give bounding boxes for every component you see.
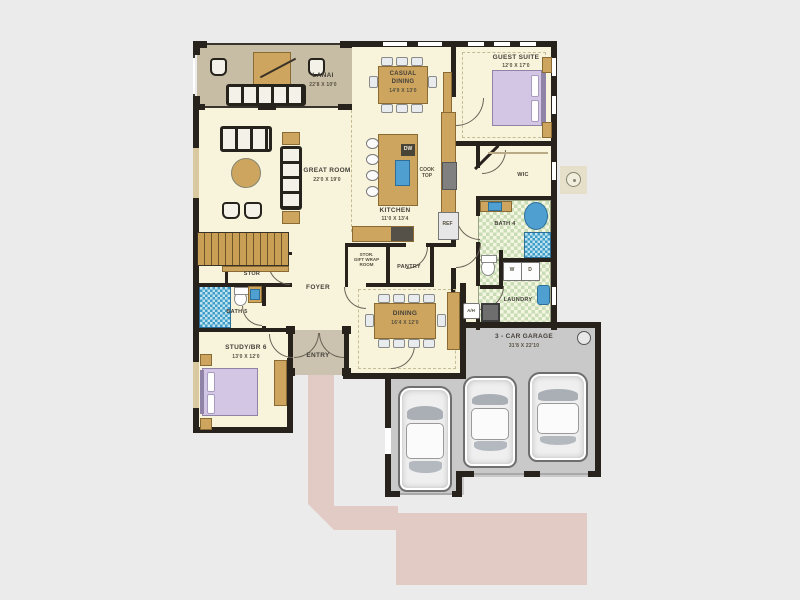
dining-label: DINING bbox=[381, 310, 429, 318]
window bbox=[193, 58, 195, 94]
study-bed bbox=[202, 368, 258, 416]
wall bbox=[460, 283, 466, 379]
end-table bbox=[282, 132, 300, 145]
sectional-sofa bbox=[280, 146, 302, 210]
wic-label: WIC bbox=[505, 172, 541, 179]
lanai-coffee-table bbox=[253, 52, 291, 85]
bath5-sink bbox=[250, 289, 260, 300]
garage-label: 3 - CAR GARAGE bbox=[468, 333, 580, 341]
dining-chair bbox=[378, 294, 390, 303]
nightstand bbox=[200, 354, 212, 366]
great-room-label: GREAT ROOM bbox=[300, 167, 354, 175]
wall bbox=[262, 283, 266, 306]
window bbox=[193, 148, 199, 198]
closet-shelf bbox=[488, 152, 548, 154]
stool bbox=[366, 186, 379, 197]
window bbox=[494, 42, 510, 46]
dining-chair bbox=[428, 76, 437, 88]
dining-chair bbox=[396, 57, 408, 66]
garage-door-sill bbox=[474, 473, 524, 475]
window bbox=[193, 362, 199, 408]
wall bbox=[456, 141, 551, 146]
car bbox=[398, 386, 452, 492]
garage-window bbox=[385, 428, 391, 454]
armchair bbox=[222, 202, 240, 219]
kitchen-label: KITCHEN bbox=[368, 207, 422, 215]
bath5-shower bbox=[199, 286, 231, 328]
wall bbox=[588, 471, 601, 477]
stool bbox=[366, 170, 379, 181]
cooktop-label: COOK TOP bbox=[416, 168, 438, 180]
bath4-tub bbox=[524, 202, 548, 230]
window bbox=[468, 42, 484, 46]
wall bbox=[456, 322, 600, 328]
study-dims: 13'0 X 12'0 bbox=[216, 354, 276, 360]
wall bbox=[193, 41, 200, 55]
toilet-tank bbox=[234, 287, 249, 295]
stor-label: STOR bbox=[236, 271, 268, 278]
lanai-chair bbox=[210, 58, 227, 76]
dining-chair bbox=[381, 57, 393, 66]
ac-fan-dot bbox=[573, 179, 576, 182]
window bbox=[552, 58, 556, 76]
washer: W bbox=[503, 262, 522, 281]
wall bbox=[197, 328, 290, 332]
dining-chair bbox=[378, 339, 390, 348]
ac-unit bbox=[566, 172, 581, 187]
window bbox=[552, 96, 556, 114]
lanai-label: LANAI bbox=[303, 72, 343, 80]
dining-dims: 16'4 X 12'0 bbox=[381, 320, 429, 326]
dining-chair bbox=[365, 314, 374, 327]
wall bbox=[345, 243, 348, 287]
dining-chair bbox=[423, 339, 435, 348]
great-room-sofa bbox=[220, 126, 272, 152]
wall bbox=[430, 243, 434, 287]
laundry-label: LAUNDRY bbox=[498, 297, 538, 304]
wall bbox=[456, 471, 462, 497]
nightstand bbox=[542, 122, 552, 138]
bath4-sink bbox=[488, 202, 502, 211]
garage-dims: 31'8 X 22'10 bbox=[468, 343, 580, 349]
window bbox=[552, 287, 556, 305]
buffet bbox=[447, 292, 460, 350]
dining-chair bbox=[408, 339, 420, 348]
wall bbox=[480, 196, 551, 200]
dining-chair bbox=[393, 339, 405, 348]
laundry-sink bbox=[537, 285, 550, 305]
staircase bbox=[197, 232, 289, 266]
great-room-dims: 22'0 X 19'0 bbox=[300, 177, 354, 183]
pillow bbox=[207, 372, 215, 392]
pantry-label: PANTRY bbox=[390, 264, 428, 271]
study-label: STUDY/BR 6 bbox=[216, 344, 276, 352]
stool bbox=[366, 154, 379, 165]
floor-plan: { "plan": { "title": "single-story floor… bbox=[0, 0, 800, 600]
wall bbox=[344, 332, 349, 372]
wall bbox=[343, 373, 466, 379]
pillow bbox=[531, 75, 539, 97]
island-sink bbox=[395, 160, 410, 186]
round-table bbox=[231, 158, 261, 188]
guest-bed bbox=[492, 70, 542, 126]
stor-gift-label: STOR. GIFT WRAP ROOM bbox=[350, 252, 383, 268]
window bbox=[418, 42, 442, 46]
nightstand bbox=[200, 418, 212, 430]
lanai-dims: 22'8 X 10'0 bbox=[303, 82, 343, 88]
pillow bbox=[531, 100, 539, 122]
dishwasher-label: DW bbox=[401, 147, 415, 153]
dryer: D bbox=[521, 262, 540, 281]
wall bbox=[524, 471, 540, 477]
refrigerator-label: REF bbox=[439, 222, 456, 228]
driveway bbox=[396, 513, 587, 585]
dining-chair bbox=[396, 104, 408, 113]
pillow bbox=[207, 394, 215, 414]
wall bbox=[366, 283, 434, 287]
headboard bbox=[542, 72, 546, 124]
armchair bbox=[244, 202, 262, 219]
garage-door-sill bbox=[540, 473, 588, 475]
dryer-label: D bbox=[522, 268, 538, 274]
wall bbox=[340, 41, 352, 48]
cooktop bbox=[442, 162, 457, 190]
dining-chair bbox=[408, 294, 420, 303]
washer-label: W bbox=[504, 268, 520, 274]
wall bbox=[345, 243, 406, 247]
wall bbox=[460, 471, 474, 477]
dining-chair bbox=[411, 104, 423, 113]
foyer-label: FOYER bbox=[296, 284, 340, 292]
bath4-label: BATH 4 bbox=[487, 221, 523, 228]
guest-suite-label: GUEST SUITE bbox=[482, 54, 550, 62]
stool bbox=[366, 138, 379, 149]
casual-dining-label: CASUAL DINING bbox=[381, 71, 425, 86]
headboard bbox=[200, 370, 204, 414]
window bbox=[552, 162, 556, 180]
water-heater bbox=[481, 303, 500, 322]
air-handler: A/H bbox=[463, 303, 480, 319]
dining-chair bbox=[411, 57, 423, 66]
bath4-shower bbox=[524, 232, 551, 258]
car bbox=[463, 376, 517, 468]
wall bbox=[385, 491, 400, 497]
casual-dining-dims: 14'9 X 13'0 bbox=[381, 88, 425, 94]
dresser bbox=[274, 360, 287, 406]
refrigerator: REF bbox=[438, 212, 459, 240]
wall bbox=[199, 43, 352, 45]
dining-chair bbox=[437, 314, 446, 327]
lanai-sofa bbox=[226, 84, 306, 106]
dishwasher: DW bbox=[401, 144, 415, 156]
wall bbox=[385, 373, 391, 428]
end-table bbox=[282, 211, 300, 224]
toilet-tank bbox=[481, 255, 497, 263]
wall bbox=[595, 322, 601, 477]
bath5-label: BATH 5 bbox=[218, 309, 256, 316]
dining-chair bbox=[393, 294, 405, 303]
window bbox=[383, 42, 407, 46]
air-handler-label: A/H bbox=[464, 308, 478, 313]
range bbox=[391, 227, 413, 241]
dining-chair bbox=[423, 294, 435, 303]
wall bbox=[338, 104, 352, 110]
entry-label: ENTRY bbox=[296, 352, 340, 360]
guest-suite-dims: 12'0 X 17'0 bbox=[482, 63, 550, 69]
table-decor bbox=[260, 58, 296, 79]
car bbox=[528, 372, 588, 462]
window bbox=[520, 42, 536, 46]
stor-gift-line3: ROOM bbox=[360, 262, 374, 267]
kitchen-dims: 11'0 X 13'4 bbox=[368, 216, 422, 222]
dining-chair bbox=[369, 76, 378, 88]
dining-chair bbox=[381, 104, 393, 113]
garage-door-sill bbox=[400, 493, 452, 495]
